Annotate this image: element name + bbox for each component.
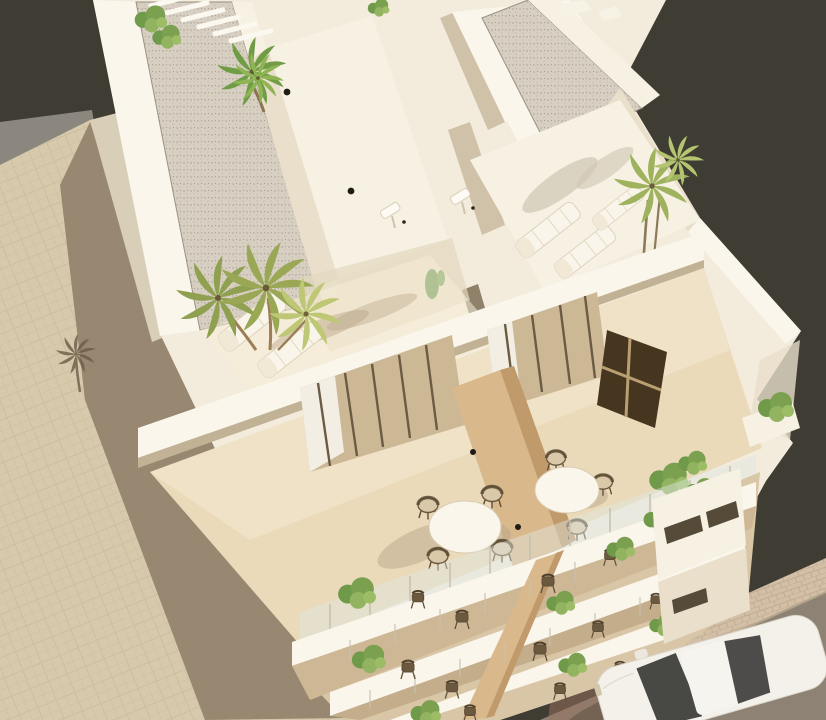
bistro-table — [535, 467, 599, 513]
wall-knob — [515, 524, 521, 530]
architectural-render — [0, 0, 826, 720]
bistro-table — [429, 501, 501, 553]
wall-lamp — [284, 89, 291, 96]
wall-knob — [470, 449, 476, 455]
render-canvas — [0, 0, 826, 720]
wall-lamp — [348, 188, 355, 195]
